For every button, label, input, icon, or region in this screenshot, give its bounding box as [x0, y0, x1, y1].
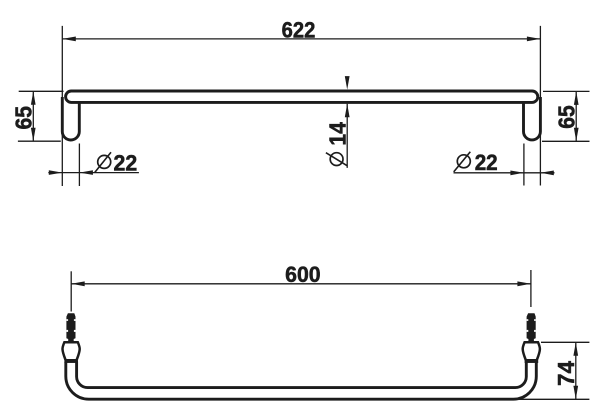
svg-text:65: 65 — [11, 106, 37, 130]
svg-text:22: 22 — [475, 150, 498, 175]
svg-text:14: 14 — [325, 122, 351, 146]
svg-text:600: 600 — [285, 262, 321, 287]
svg-text:22: 22 — [114, 150, 138, 175]
svg-text:65: 65 — [554, 105, 580, 129]
svg-text:622: 622 — [282, 18, 316, 43]
svg-text:74: 74 — [553, 361, 579, 386]
